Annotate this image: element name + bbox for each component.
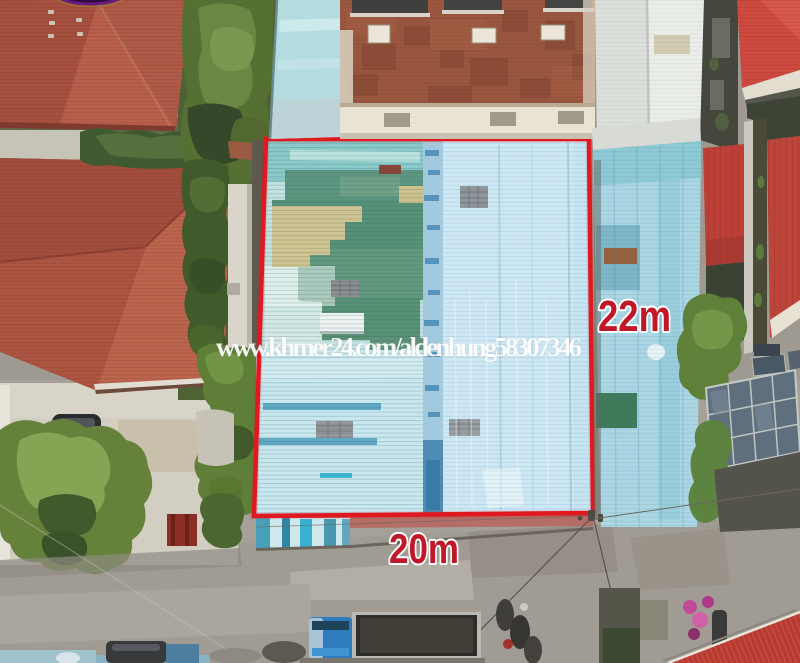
svg-text:www.khmer24.com/aldenhung58307: www.khmer24.com/aldenhung58307346 [216, 332, 582, 362]
svg-text:22m: 22m [598, 292, 671, 341]
svg-text:20m: 20m [389, 525, 459, 572]
